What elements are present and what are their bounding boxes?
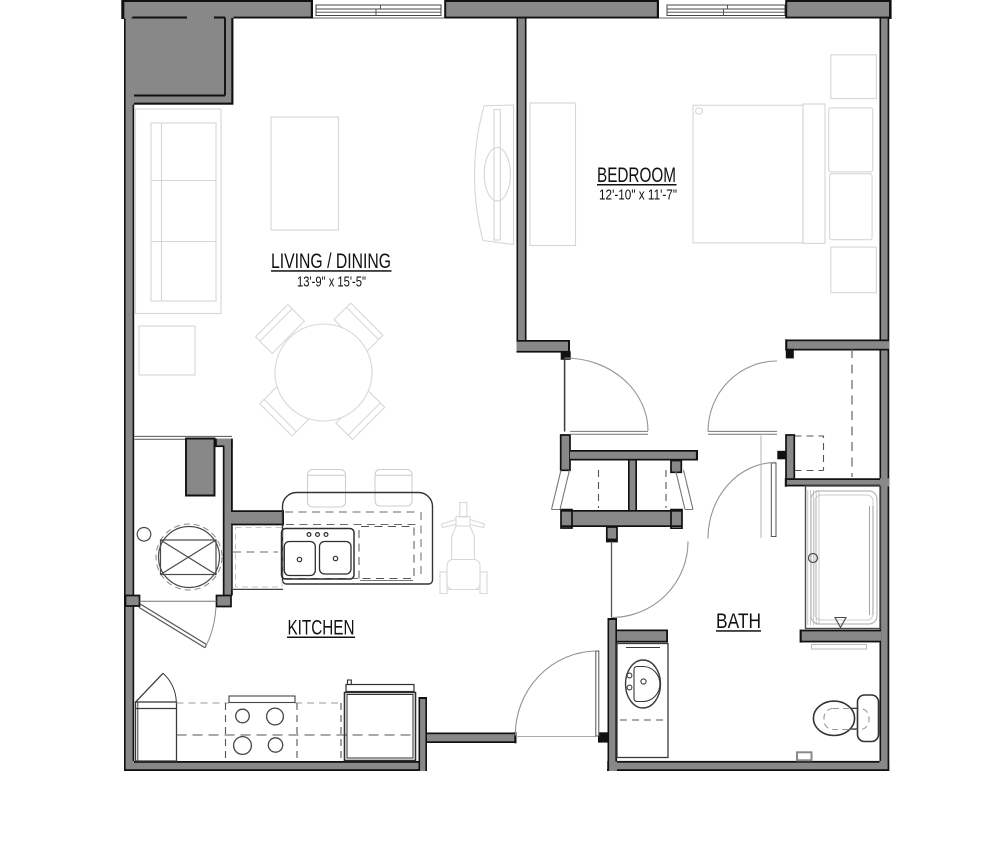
svg-text:13'-9" x 15'-5": 13'-9" x 15'-5" — [297, 275, 366, 291]
svg-text:LIVING / DINING: LIVING / DINING — [271, 250, 391, 273]
svg-text:BATH: BATH — [716, 610, 761, 633]
svg-text:12'-10" x 11'-7": 12'-10" x 11'-7" — [599, 188, 677, 204]
svg-text:BEDROOM: BEDROOM — [597, 164, 676, 187]
svg-text:KITCHEN: KITCHEN — [288, 617, 355, 640]
